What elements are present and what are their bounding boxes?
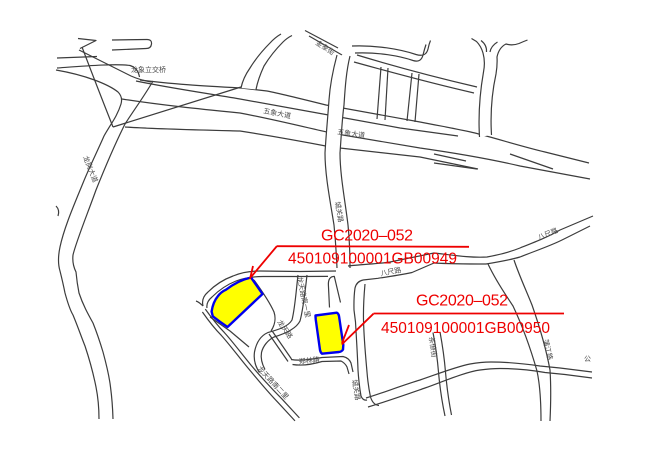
svg-text:蒲江路: 蒲江路 [541,338,555,361]
svg-text:公: 公 [584,355,591,363]
svg-text:城关路: 城关路 [350,379,363,401]
svg-text:郑林路: 郑林路 [298,355,320,366]
svg-text:茶僚街: 茶僚街 [427,336,439,358]
svg-text:龙天路南一里: 龙天路南一里 [295,276,313,319]
svg-text:450109100001GB00949: 450109100001GB00949 [288,251,457,268]
svg-text:GC2020–052: GC2020–052 [416,293,508,310]
svg-text:龙象立交桥: 龙象立交桥 [131,65,166,74]
svg-text:八尺路: 八尺路 [536,226,559,242]
svg-text:GC2020–052: GC2020–052 [321,228,413,245]
svg-text:450109100001GB00950: 450109100001GB00950 [381,320,550,337]
